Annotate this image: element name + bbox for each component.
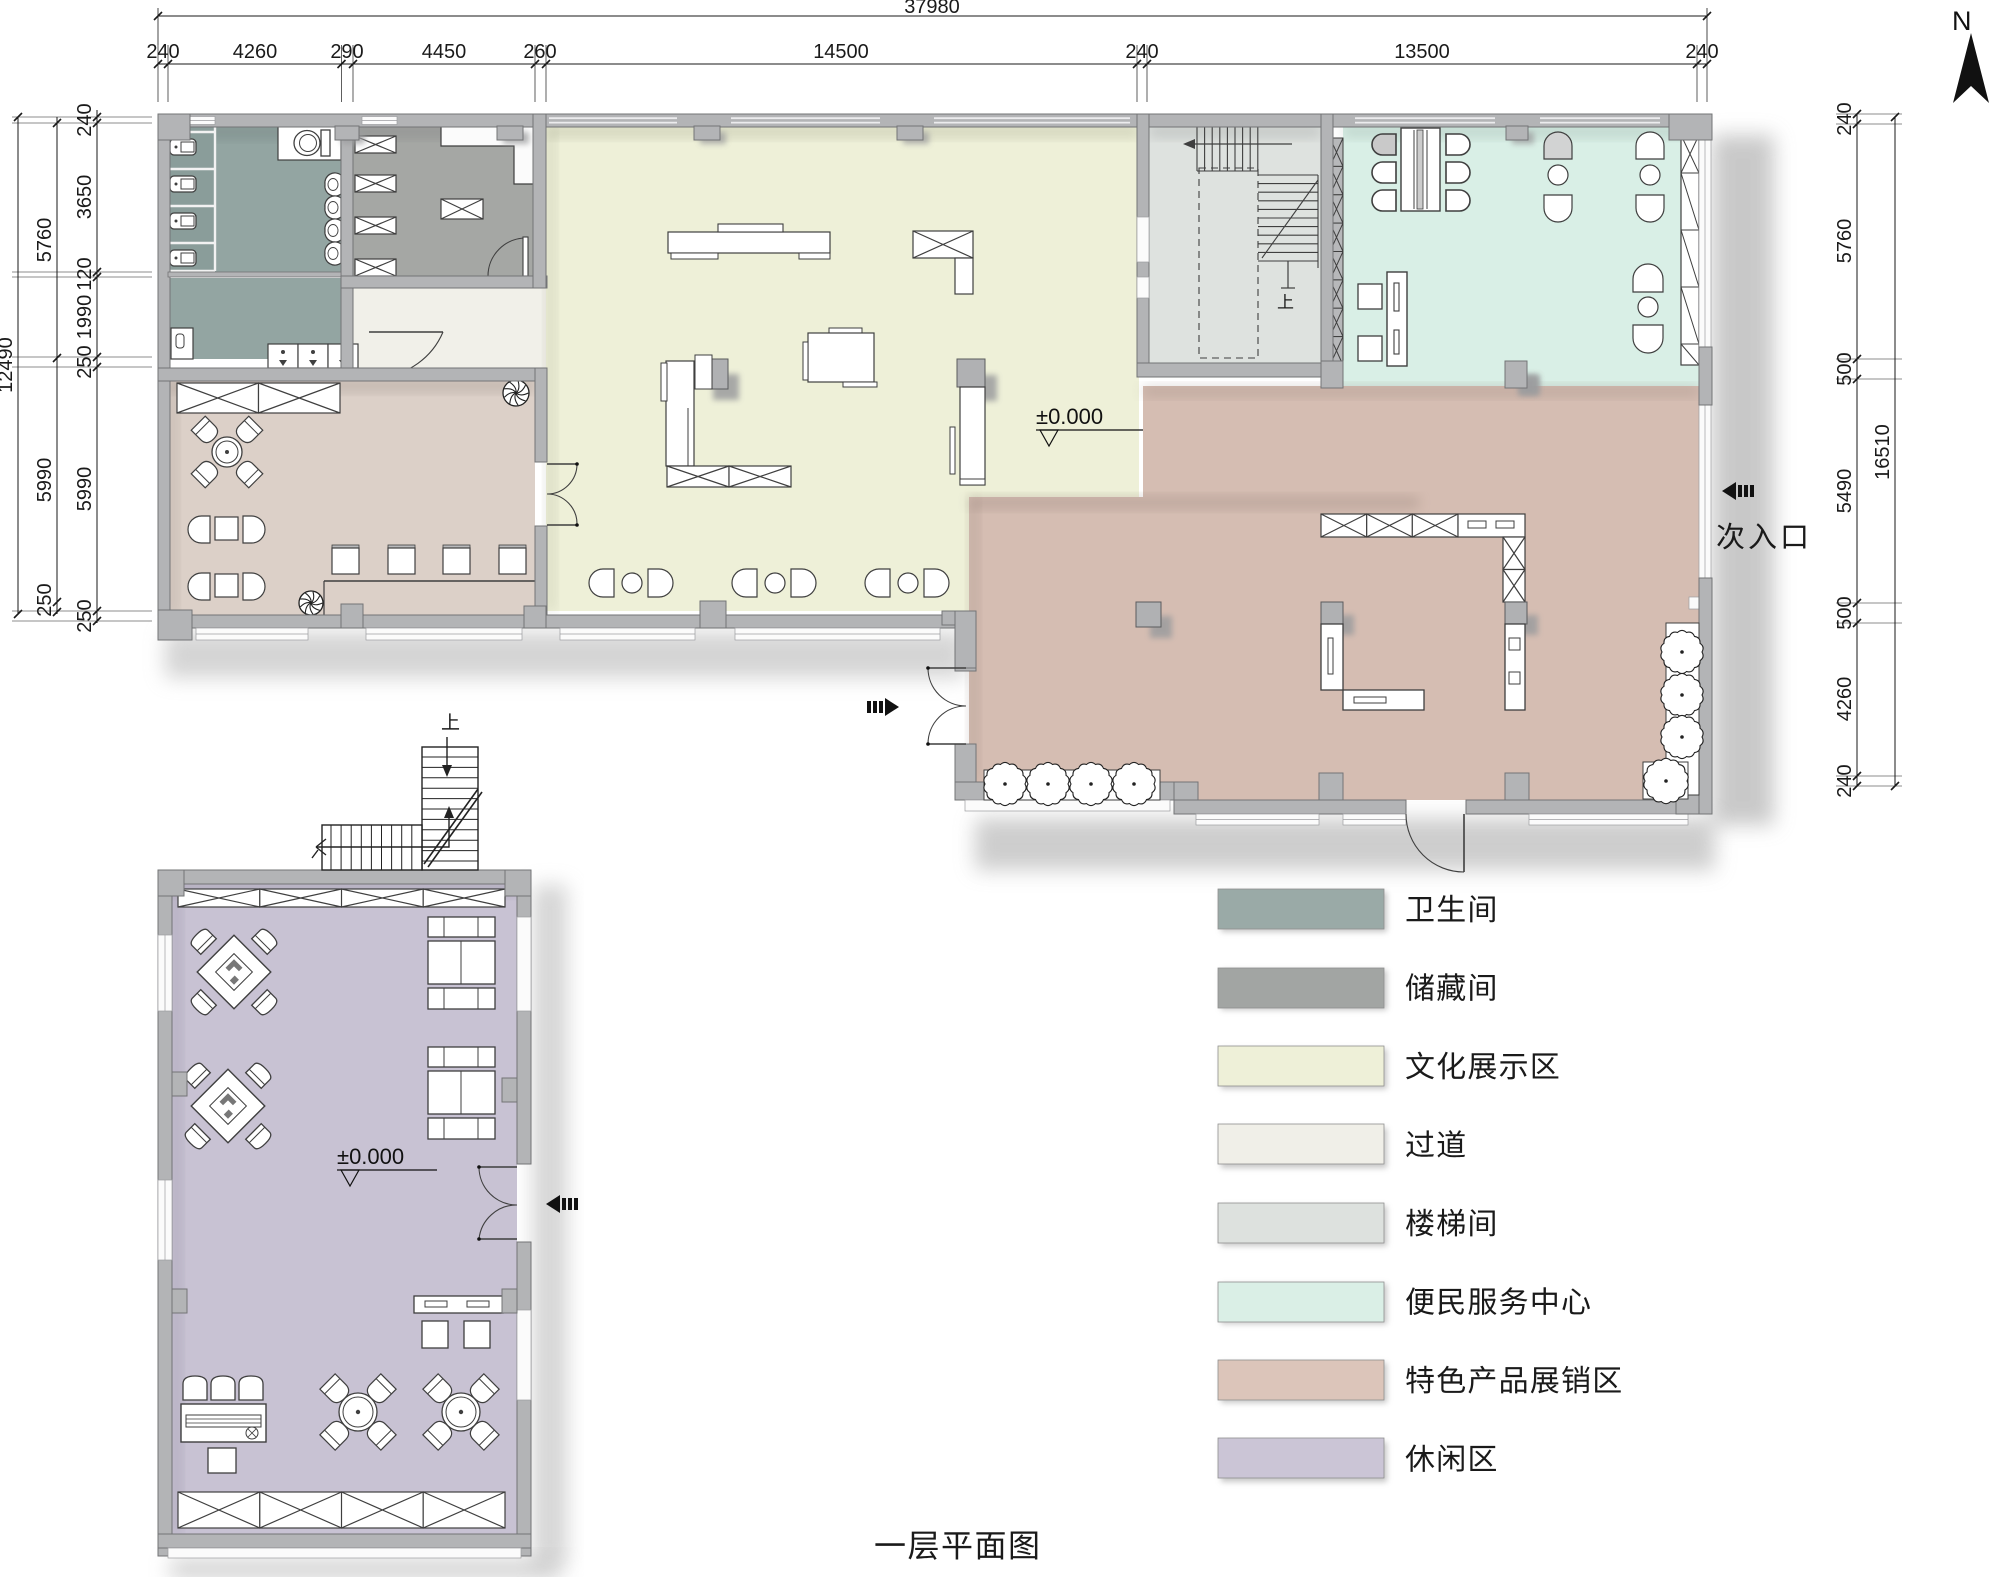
svg-text:5990: 5990 [34, 458, 56, 503]
svg-text:3650: 3650 [74, 175, 96, 220]
svg-text:5760: 5760 [1834, 219, 1856, 264]
svg-text:±0.000: ±0.000 [337, 1144, 404, 1169]
svg-text:120: 120 [74, 257, 96, 290]
svg-text:5760: 5760 [34, 218, 56, 263]
svg-text:290: 290 [330, 41, 363, 63]
svg-text:240: 240 [1834, 102, 1856, 135]
svg-text:240: 240 [1125, 41, 1158, 63]
svg-text:250: 250 [34, 583, 56, 616]
svg-text:250: 250 [74, 599, 96, 632]
svg-text:240: 240 [74, 103, 96, 136]
svg-text:4260: 4260 [233, 41, 278, 63]
svg-text:12490: 12490 [0, 337, 17, 393]
svg-text:1990: 1990 [74, 295, 96, 340]
svg-text:±0.000: ±0.000 [1036, 404, 1103, 429]
svg-text:N: N [1952, 6, 1972, 36]
svg-text:500: 500 [1834, 596, 1856, 629]
svg-text:240: 240 [1685, 41, 1718, 63]
svg-text:240: 240 [146, 41, 179, 63]
svg-text:16510: 16510 [1872, 424, 1894, 480]
svg-text:4450: 4450 [422, 41, 467, 63]
svg-text:240: 240 [1834, 764, 1856, 797]
svg-text:5990: 5990 [74, 467, 96, 512]
svg-text:250: 250 [74, 345, 96, 378]
svg-text:37980: 37980 [904, 0, 960, 18]
svg-text:500: 500 [1834, 352, 1856, 385]
svg-text:14500: 14500 [813, 41, 869, 63]
svg-text:5490: 5490 [1834, 469, 1856, 514]
svg-text:13500: 13500 [1394, 41, 1450, 63]
svg-text:4260: 4260 [1834, 677, 1856, 722]
svg-text:260: 260 [523, 41, 556, 63]
